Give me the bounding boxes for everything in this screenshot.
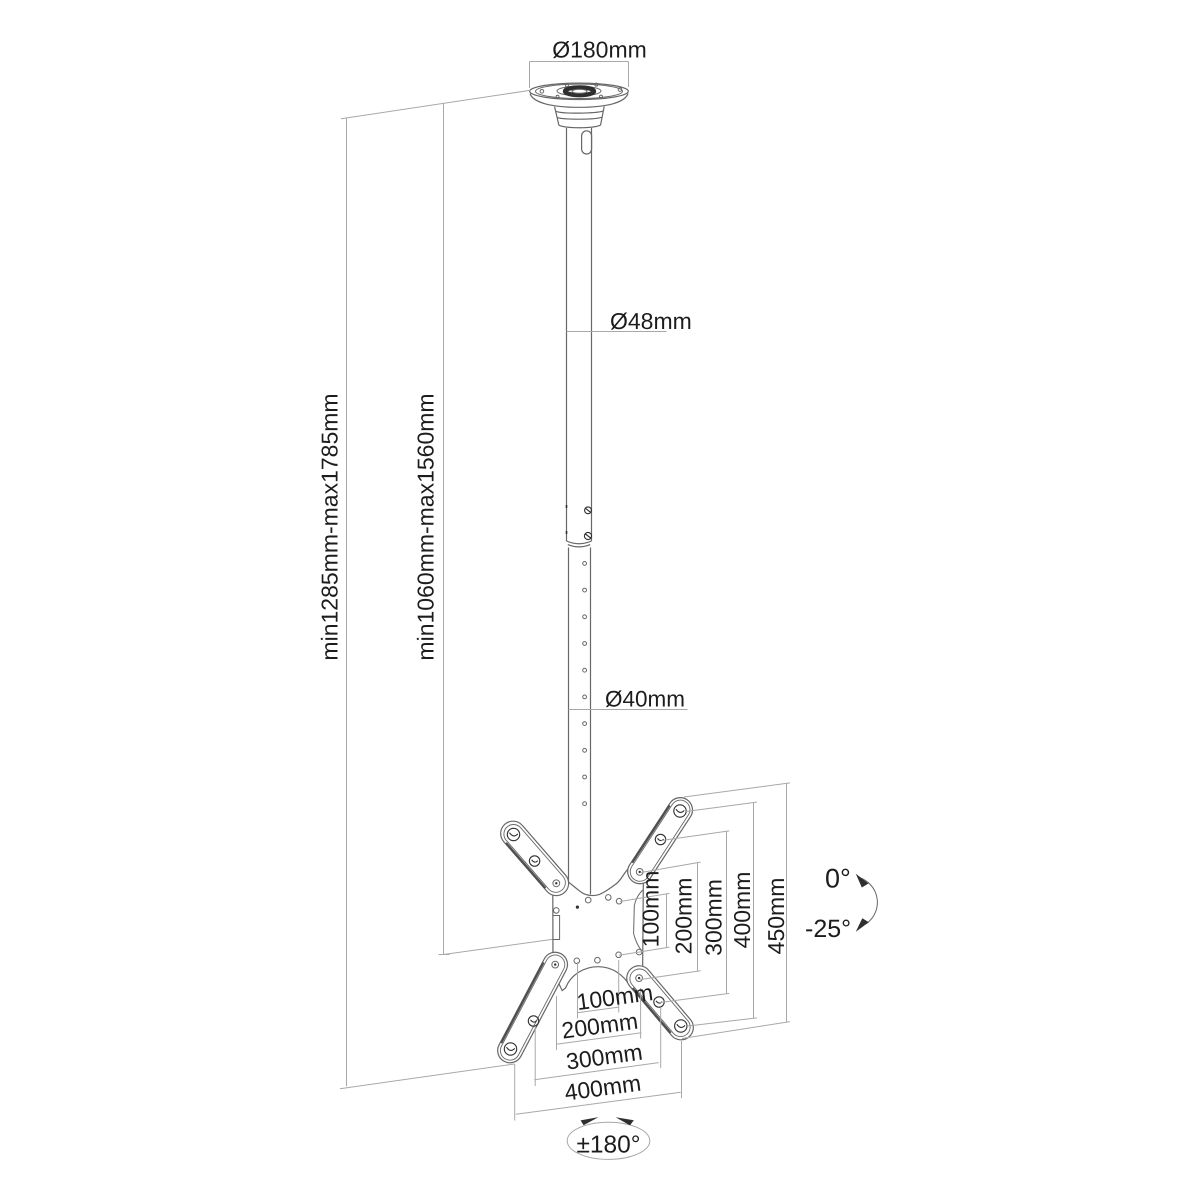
svg-text:±180°: ±180°: [576, 1132, 640, 1159]
svg-text:200mm: 200mm: [671, 878, 697, 955]
svg-text:300mm: 300mm: [701, 879, 727, 956]
svg-text:Ø48mm: Ø48mm: [610, 308, 692, 334]
svg-text:0°: 0°: [825, 864, 851, 894]
svg-text:min1060mm-max1560mm: min1060mm-max1560mm: [413, 393, 439, 660]
svg-text:-25°: -25°: [805, 915, 851, 943]
svg-text:450mm: 450mm: [763, 878, 789, 955]
svg-text:Ø180mm: Ø180mm: [552, 37, 647, 63]
svg-text:min1285mm-max1785mm: min1285mm-max1785mm: [317, 393, 343, 660]
svg-text:Ø40mm: Ø40mm: [605, 687, 685, 712]
svg-text:100mm: 100mm: [638, 871, 664, 948]
svg-text:400mm: 400mm: [729, 872, 755, 949]
